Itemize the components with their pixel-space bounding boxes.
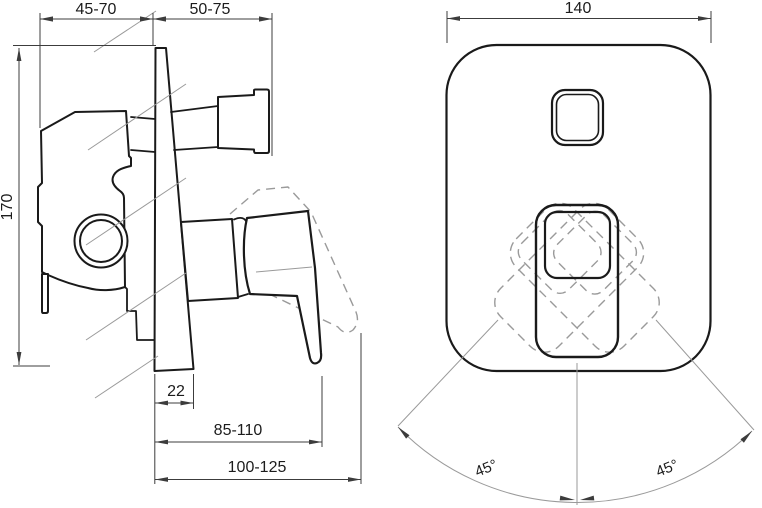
swing-arc-arrow-right-end: [741, 431, 753, 443]
swing-arc: [398, 427, 752, 502]
front-view: 45° 45° 140: [398, 0, 754, 505]
dimension-plate-width: 140: [447, 0, 711, 43]
dimension-depth-behind-wall-label: 45-70: [76, 1, 117, 18]
angle-label-left: 45°: [472, 456, 499, 480]
dimension-handle-projection-max-label: 100-125: [228, 459, 287, 476]
mounting-foot: [42, 274, 48, 313]
swing-arc-arrow-center-left: [560, 496, 575, 501]
dimension-plate-width-label: 140: [565, 0, 592, 17]
drawing-canvas: 45-70 50-75 170 22 85-110: [0, 0, 762, 508]
dimension-plate-thickness: 22: [155, 374, 194, 484]
dimension-plate-thickness-label: 22: [167, 383, 185, 400]
handle-mount-block: [181, 219, 238, 301]
dimension-body-height-label: 170: [0, 194, 16, 221]
outlet-pipe: [171, 106, 218, 150]
technical-drawing-page: 45-70 50-75 170 22 85-110: [0, 0, 762, 508]
dimension-depth-in-front-label: 50-75: [190, 1, 231, 18]
dimension-handle-projection-label: 85-110: [214, 422, 263, 439]
swing-arc-arrow-center-right: [580, 496, 594, 501]
lever-handle-side: [244, 211, 321, 363]
outlet-coupling: [218, 90, 269, 154]
swing-arc-arrow-left-end: [398, 427, 410, 439]
inlet-pipe-lower: [125, 287, 154, 340]
side-view: 45-70 50-75 170 22 85-110: [0, 1, 361, 484]
inlet-pipe-upper: [131, 117, 155, 152]
angle-label-right: 45°: [653, 456, 680, 480]
cover-plate-side: [155, 48, 194, 371]
cartridge-circle-inner: [80, 220, 122, 262]
dimension-depth-behind-wall: 45-70: [40, 1, 153, 128]
